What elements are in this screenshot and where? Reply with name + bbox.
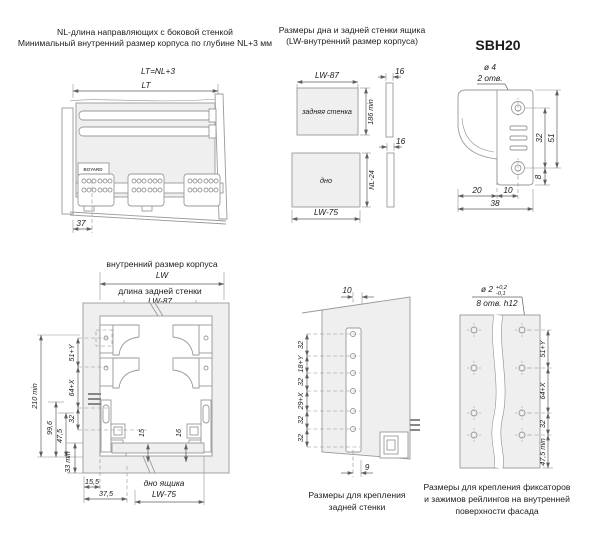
- chain-3-label: 29+X: [296, 391, 305, 410]
- dim-32-label: 32: [534, 133, 544, 143]
- chain-5-label: 32: [296, 434, 305, 442]
- cabinet-drawing: [83, 303, 229, 473]
- chain-32-label: 32: [67, 415, 76, 423]
- caption-facade-line1: Размеры для крепления фиксаторов: [424, 482, 571, 492]
- caption-backfix-line1: Размеры для крепления: [308, 490, 405, 500]
- facade-hole-count: 8 отв. h12: [476, 298, 518, 308]
- dim-210min-label: 210 min: [30, 383, 39, 410]
- bottom-panel-label: дно: [320, 176, 332, 185]
- caption-nl-line2: Минимальный внутренний размер корпуса по…: [18, 38, 272, 48]
- panel-back-and-bottom: Размеры дна и задней стенки ящика (LW-вн…: [279, 25, 426, 223]
- back-wall-edge-view: [386, 83, 393, 137]
- formula-lt: LT=NL+3: [141, 66, 175, 76]
- dim-51-label: 51: [546, 133, 556, 142]
- dim-155-label: 15,5: [85, 477, 100, 486]
- back-wall-drawing: LW-87 задняя стенка 186 min 16: [297, 66, 405, 137]
- caption-facade-line3: поверхности фасада: [455, 506, 539, 516]
- caption-nl-line1: NL-длина направляющих с боковой стенкой: [57, 27, 233, 37]
- dim-996-label: 99,6: [45, 421, 54, 435]
- caption-backfix-line2: задней стенки: [329, 502, 386, 512]
- technical-drawing-sheet: NL-длина направляющих с боковой стенкой …: [0, 0, 600, 544]
- dim-186min-label: 186 min: [366, 99, 375, 125]
- dim-lt-label: LT: [141, 80, 151, 90]
- bottom-panel-drawing: дно NL-24 LW-75 16: [292, 136, 406, 223]
- dim-10-label: 10: [342, 285, 352, 295]
- dim-475-label: 47,5: [55, 428, 64, 443]
- dim-9-label: 9: [365, 462, 370, 472]
- dim-nl24-label: NL-24: [367, 170, 376, 190]
- caption-mid-line1: Размеры дна и задней стенки ящика: [279, 25, 426, 35]
- chain-1-label: 18+Y: [296, 354, 305, 372]
- chain-0-label: 32: [296, 341, 305, 349]
- dim-lw-label: LW: [156, 270, 169, 280]
- dim-375-label: 37,5: [99, 489, 114, 498]
- dim-10-label: 10: [503, 185, 513, 195]
- dim-20-label: 20: [471, 185, 482, 195]
- facade-panel-drawing: [460, 315, 540, 468]
- panel-sbh20: SBH20 ø 4 2 отв. 32 51: [458, 37, 561, 212]
- dim-33min-label: 33 min: [63, 451, 72, 473]
- chain-51y-label: 51+Y: [67, 343, 76, 361]
- chain-4-label: 32: [296, 416, 305, 424]
- dim-38-label: 38: [490, 198, 500, 208]
- rail-upper: [79, 109, 216, 122]
- drawer-bottom-panel: [112, 443, 204, 453]
- facade-chain-2-label: 32: [538, 420, 547, 428]
- dim-16-bottom-label: 16: [396, 136, 406, 146]
- facade-hole-dia: ø 2: [481, 284, 493, 294]
- brand-logo: BOYARD: [83, 167, 103, 172]
- facade-chain-0-label: 51+Y: [538, 339, 547, 357]
- side-section-drawing: [302, 297, 420, 459]
- panel-back-fixing: 10: [296, 285, 420, 512]
- panel-slide-length: NL-длина направляющих с боковой стенкой …: [18, 27, 272, 233]
- panel-facade-drilling: ø 2 +0,2 -0,1 8 отв. h12: [424, 284, 571, 516]
- caption-mid-line2: (LW-внутренний размер корпуса): [286, 36, 418, 46]
- bracket-drawing: [458, 90, 533, 185]
- dim-16-back-label: 16: [395, 66, 405, 76]
- caption-lw: внутренний размер корпуса: [106, 259, 217, 269]
- hole-count-label: 2 отв.: [476, 73, 502, 83]
- facade-chain-3-label: 47,5 min: [538, 438, 547, 466]
- drawing-side-view: BOYARD: [62, 94, 227, 224]
- caption-facade-line2: и зажимов рейлингов на внутренней: [424, 494, 570, 504]
- dim-lw75b-label: LW-75: [152, 489, 176, 499]
- facade-tol-minus: -0,1: [496, 291, 506, 297]
- dim-37-label: 37: [76, 218, 86, 228]
- caption-dno: дно ящика: [144, 478, 185, 488]
- gap-16-label: 16: [174, 429, 183, 437]
- dim-8-label: 8: [533, 174, 543, 179]
- rail-lower: [79, 125, 216, 138]
- back-wall-label: задняя стенка: [301, 107, 352, 116]
- hole-dia-label: ø 4: [484, 62, 496, 72]
- facade-chain-1-label: 64+X: [538, 381, 547, 399]
- mounting-plates: [78, 174, 220, 211]
- panel-cabinet-section: внутренний размер корпуса LW длина задне…: [30, 259, 229, 505]
- caption-back-length: длина задней стенки: [118, 286, 202, 296]
- dim-lw87-label: LW-87: [315, 70, 339, 80]
- dim-lt: LT: [73, 80, 218, 98]
- chain-2-label: 32: [296, 378, 305, 386]
- chain-64x-label: 64+X: [67, 378, 76, 396]
- bottom-panel-edge-view: [387, 153, 394, 207]
- gap-15-label: 15: [137, 428, 146, 437]
- dim-lw75-label: LW-75: [314, 207, 338, 217]
- product-title: SBH20: [475, 37, 520, 53]
